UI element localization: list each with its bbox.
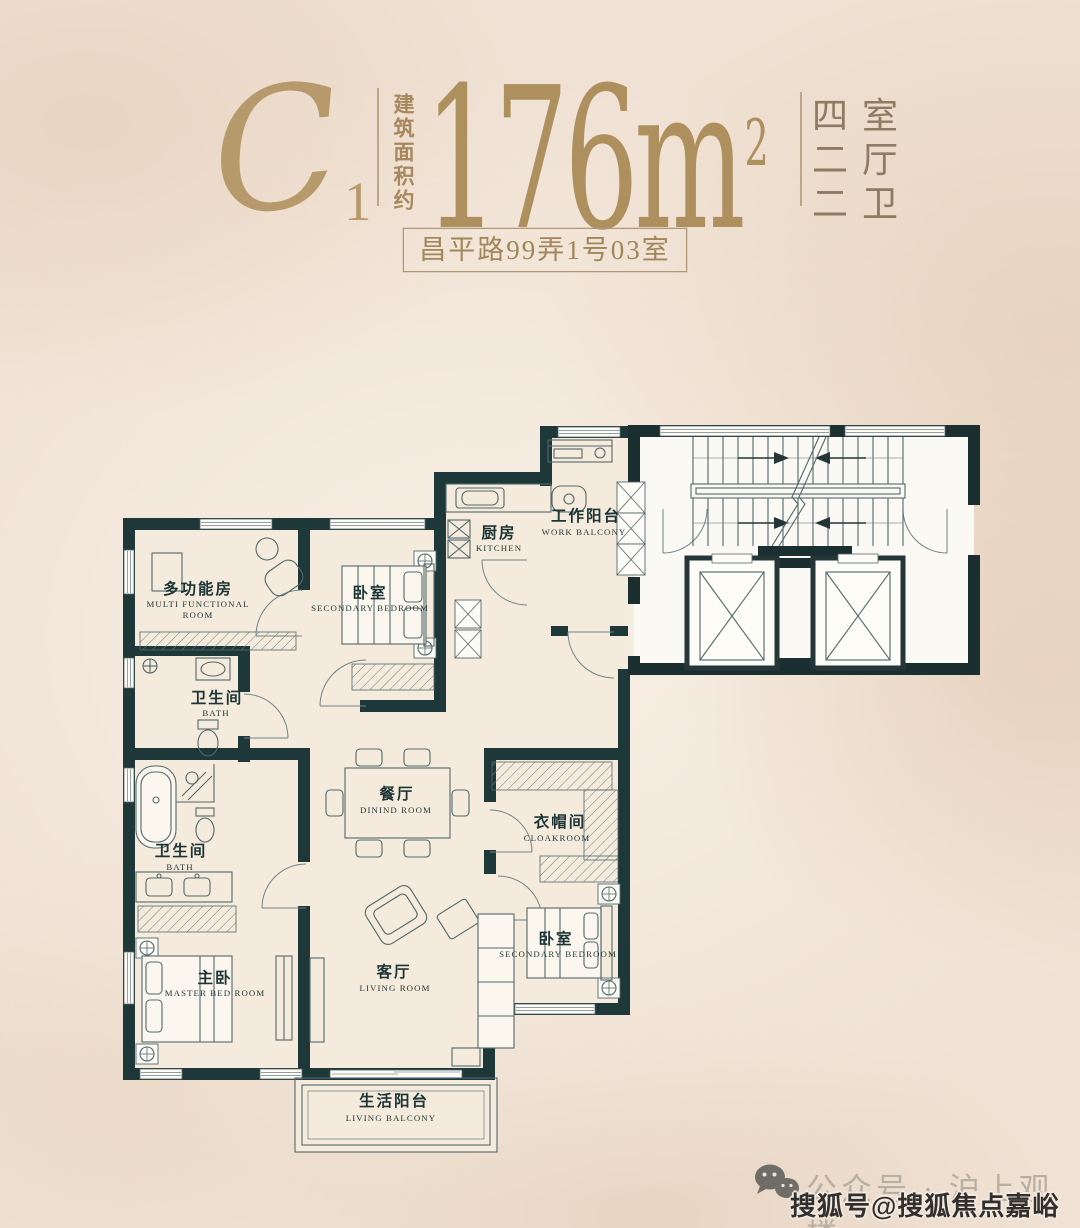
label-bedroom-right-zh: 卧室 (538, 929, 573, 948)
label-work-balcony-en: WORK BALCONY (542, 527, 627, 537)
area-exponent: 2 (744, 107, 768, 181)
floor-plan-poster: C 1 建筑面积约 176m2 四室 二厅 二卫 昌平路99弄1号03室 (0, 0, 1080, 1228)
elevator-left (687, 554, 777, 668)
spec-halls: 二厅 (812, 138, 912, 182)
balcony-slider-window (330, 1070, 462, 1078)
floor-plan-svg: 多功能房 MULTI FUNCTIONAL ROOM 卧室 SECONDARY … (100, 410, 980, 1170)
elevator-right (813, 554, 903, 668)
label-bath-upper-en: BATH (202, 708, 229, 718)
plan-code-logo: C 1 (212, 66, 387, 236)
header-divider-left (377, 88, 379, 206)
label-living-balcony-en: LIVING BALCONY (346, 1113, 436, 1123)
label-living-en: LIVING ROOM (360, 983, 431, 993)
plan-code-number: 1 (344, 174, 372, 229)
label-multi-en2: ROOM (183, 610, 214, 620)
label-master-en: MASTER BED ROOM (165, 988, 266, 998)
label-living-balcony-zh: 生活阳台 (359, 1091, 429, 1110)
label-living-zh: 客厅 (376, 962, 411, 981)
label-kitchen-zh: 厨房 (481, 523, 516, 542)
staircase (691, 437, 905, 546)
label-bedroom-right-en: SECONDARY BEDROOM (499, 949, 617, 959)
label-bath-upper-zh: 卫生间 (191, 688, 244, 707)
address-box: 昌平路99弄1号03室 (403, 228, 687, 272)
floor-fills (129, 431, 974, 1152)
label-multi-zh: 多功能房 (163, 579, 233, 598)
label-dining-en: DININD ROOM (360, 805, 432, 815)
spec-baths: 二卫 (812, 182, 912, 226)
watermark-text: 搜狐号@搜狐焦点嘉峪关站 (790, 1186, 1080, 1228)
label-bedroom-top-en: SECONDARY BEDROOM (311, 603, 429, 613)
label-cloakroom-en: CLOAKROOM (524, 833, 591, 843)
label-master-zh: 主卧 (197, 968, 232, 987)
label-multi-en: MULTI FUNCTIONAL (146, 599, 249, 609)
spec-bedrooms: 四室 (812, 94, 912, 138)
label-cloakroom-zh: 衣帽间 (534, 812, 587, 831)
label-kitchen-en: KITCHEN (476, 543, 522, 553)
label-bedroom-top-zh: 卧室 (352, 583, 387, 602)
area-label-vertical: 建筑面积约 (388, 93, 418, 215)
label-dining-zh: 餐厅 (378, 784, 414, 803)
room-specs: 四室 二厅 二卫 (812, 94, 912, 226)
label-bath-master-en: BATH (166, 862, 193, 872)
header-divider-right (800, 92, 802, 206)
plan-code-letter: C (204, 60, 349, 241)
label-bath-master-zh: 卫生间 (155, 841, 208, 860)
label-work-balcony-zh: 工作阳台 (551, 506, 621, 525)
